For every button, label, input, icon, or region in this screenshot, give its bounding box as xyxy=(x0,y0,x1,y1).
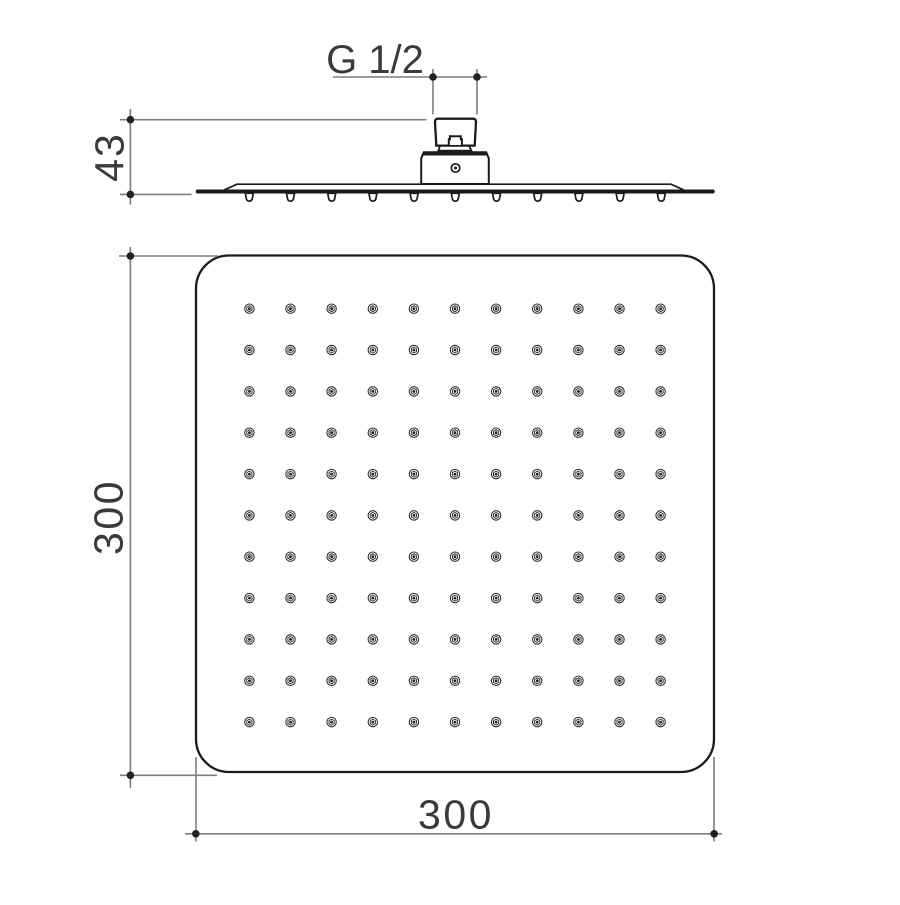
svg-text:G 1/2: G 1/2 xyxy=(326,38,424,82)
svg-text:43: 43 xyxy=(87,132,133,182)
svg-text:300: 300 xyxy=(86,479,132,555)
svg-text:300: 300 xyxy=(418,792,494,838)
